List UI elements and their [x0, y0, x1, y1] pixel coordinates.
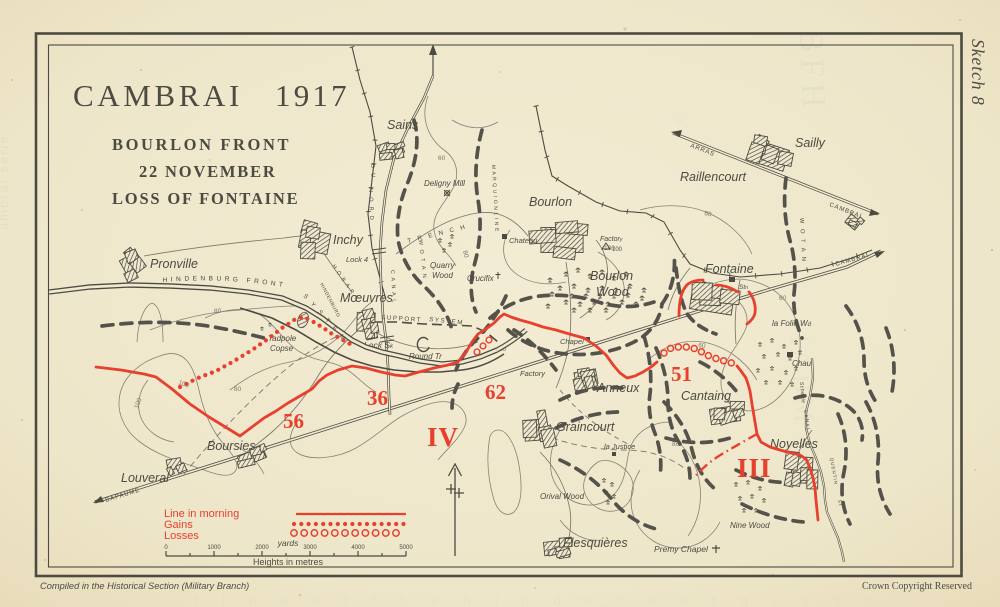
svg-text:IABM: IABM — [783, 333, 820, 428]
svg-text:Mœuvres: Mœuvres — [340, 291, 393, 305]
svg-text:Chateau: Chateau — [509, 236, 538, 245]
svg-text:Inchy: Inchy — [333, 233, 364, 247]
svg-text:Fontaine: Fontaine — [705, 262, 754, 276]
svg-text:Factory: Factory — [600, 236, 623, 243]
svg-text:Orival Wood: Orival Wood — [540, 492, 585, 501]
svg-text:Sains: Sains — [387, 118, 418, 132]
svg-text:Crucifix: Crucifix — [467, 274, 495, 283]
svg-text:Deligny Mill: Deligny Mill — [424, 179, 465, 188]
svg-text:Factory: Factory — [520, 369, 546, 378]
svg-text:Losses: Losses — [164, 530, 199, 542]
svg-text:D U: D U — [369, 164, 376, 179]
svg-text:56: 56 — [283, 409, 304, 433]
svg-text:Stn: Stn — [739, 284, 748, 291]
svg-text:Quarry: Quarry — [430, 261, 455, 270]
svg-text:LOSS OF FONTAINE: LOSS OF FONTAINE — [112, 189, 299, 208]
svg-text:100: 100 — [612, 247, 623, 253]
svg-text:la Folie Wd: la Folie Wd — [772, 319, 812, 328]
svg-text:62: 62 — [485, 380, 506, 404]
svg-text:Sketch 8: Sketch 8 — [968, 39, 988, 106]
svg-text:3000: 3000 — [303, 545, 317, 551]
svg-text:Compiled in the Historical Sec: Compiled in the Historical Section (Mili… — [40, 581, 249, 591]
svg-text:Chau: Chau — [792, 359, 812, 368]
svg-text:Copse: Copse — [270, 344, 294, 353]
svg-text:BFH: BFH — [792, 29, 832, 114]
svg-text:III: III — [737, 453, 772, 483]
svg-text:Raillencourt: Raillencourt — [680, 170, 747, 184]
svg-text:Nine Wood: Nine Wood — [730, 521, 770, 530]
svg-text:Premy Chapel: Premy Chapel — [654, 544, 709, 554]
svg-text:Sailly: Sailly — [795, 136, 826, 150]
svg-text:1000: 1000 — [207, 545, 221, 551]
svg-text:4000: 4000 — [351, 545, 365, 551]
svg-text:Pronville: Pronville — [150, 257, 198, 271]
svg-text:2000: 2000 — [255, 545, 269, 551]
svg-text:1917: 1917 — [275, 78, 350, 113]
svg-text:Cantaing: Cantaing — [681, 389, 731, 403]
svg-text:80: 80 — [214, 308, 222, 315]
svg-text:Anneux: Anneux — [596, 381, 640, 395]
svg-text:51: 51 — [671, 362, 692, 386]
svg-text:Wood: Wood — [596, 285, 630, 299]
svg-text:Boursies: Boursies — [207, 439, 256, 453]
svg-text:22 NOVEMBER: 22 NOVEMBER — [139, 162, 277, 181]
svg-text:Graincourt: Graincourt — [556, 420, 615, 434]
svg-text:CAMBRAI: CAMBRAI — [73, 78, 243, 113]
svg-text:Heights in metres: Heights in metres — [253, 557, 324, 567]
svg-text:ambrai serie: ambrai serie — [0, 134, 11, 230]
svg-text:36: 36 — [367, 386, 388, 410]
svg-text:Louveral: Louveral — [121, 471, 170, 485]
svg-text:Bourlon: Bourlon — [590, 269, 633, 283]
svg-text:yards: yards — [277, 538, 300, 548]
svg-text:Lock 4: Lock 4 — [346, 255, 368, 264]
svg-text:Wood: Wood — [432, 271, 453, 280]
svg-text:BOURLON FRONT: BOURLON FRONT — [112, 135, 291, 154]
svg-text:la Justice: la Justice — [604, 442, 635, 451]
svg-text:Crown Copyright Reserved: Crown Copyright Reserved — [862, 581, 972, 592]
svg-text:l i n e o f t h e h i n d e: l i n e o f t h e h i n d e n b u r g s … — [195, 592, 878, 607]
svg-text:80: 80 — [234, 386, 242, 393]
svg-text:60: 60 — [438, 155, 446, 162]
svg-text:60: 60 — [779, 295, 787, 302]
svg-text:Bourlon: Bourlon — [529, 195, 572, 209]
svg-text:5000: 5000 — [399, 545, 413, 551]
svg-text:Round Tr: Round Tr — [409, 352, 442, 361]
svg-text:N O R D: N O R D — [367, 188, 374, 222]
svg-text:IV: IV — [427, 422, 459, 452]
svg-text:Flesquières: Flesquières — [563, 536, 628, 550]
